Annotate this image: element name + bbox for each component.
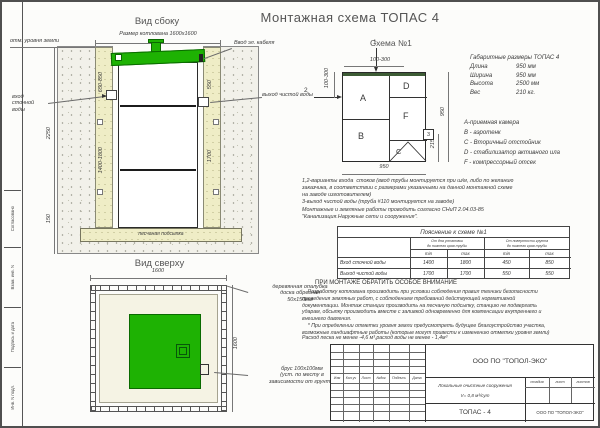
table-sub-min1: min [410, 249, 447, 257]
inlet-label: вход сточной воды [12, 94, 52, 113]
notes-text: 1,2-варианты входа стоков (ввод трубы мо… [302, 178, 600, 221]
scheme-section-a-label: A [360, 93, 366, 103]
formwork-edge-bottom [90, 406, 227, 412]
sand-bedding-label: песчаная подсыпка [138, 232, 183, 238]
dimension-tick [226, 275, 227, 281]
side-view-title: Вид сбоку [102, 16, 212, 27]
scheme-body: A B D F C [342, 72, 426, 162]
attention-footnote: Расход песка не менее -4,6 м³,расход вод… [302, 335, 447, 341]
dimension-line [448, 72, 449, 162]
dimension-line [438, 134, 439, 162]
tank-vent-cap [148, 39, 164, 43]
tank-partition-upper [120, 105, 196, 107]
spec-value: 950 мм [516, 73, 596, 79]
tb-col-list: Лист [359, 373, 373, 383]
scheme-marker2: 2 [304, 87, 308, 94]
scheme-dim-left: 100-300 [324, 68, 330, 88]
stamp-approved-cell: Согласовано [4, 190, 21, 248]
tank-body [118, 62, 198, 228]
cable-entry-label: Ввод эл. кабеля [234, 40, 304, 46]
tb-line [331, 383, 425, 384]
stamp-approved-label: Согласовано [10, 206, 15, 231]
table-colgroup-1: От дна установки до нижнего края трубы [410, 238, 484, 249]
tb-col-ndok: №док [373, 373, 389, 383]
tb-sheets-label: листов [571, 377, 595, 387]
tb-project-line2: V= 0,8 м³/сут [427, 390, 523, 400]
spec-label: Длина [470, 64, 516, 70]
scheme-dim-outlet: 215 [430, 139, 436, 148]
table-cell: 1700 [447, 269, 484, 279]
inlet-arrow [102, 94, 107, 98]
marker2-line [314, 97, 339, 98]
tb-stage-label: стадия [525, 377, 549, 387]
dim-depth: 2250 [46, 127, 52, 139]
spec-label: Ширина [470, 73, 516, 79]
scheme-section-b-label: B [358, 131, 364, 141]
table-sub-min2: min [484, 249, 529, 257]
scheme-section-f-label: F [403, 111, 409, 121]
scheme-section-c-label: C [396, 147, 401, 156]
drawing-sheet: Согласовано Взам. инв. N Подпись и дата … [0, 0, 600, 428]
title-block: Изм Кол.уч Лист №док Подпись Дата ООО ПО… [330, 344, 594, 421]
table-sub-max1: max [447, 249, 484, 257]
tb-line [331, 397, 425, 398]
top-view-dim-width: 1600 [118, 268, 198, 274]
pit-size-label: Размер котлована 1600х1600 [88, 31, 228, 37]
tb-col-podpis: Подпись [389, 373, 409, 383]
formwork-edge-top [90, 285, 227, 291]
stamp-vzam-label: Взам. инв. N [10, 265, 15, 289]
formwork-leader [226, 285, 248, 293]
top-view-dim-height: 1600 [233, 337, 239, 349]
dimension-line [344, 66, 404, 67]
table-sub-max2: max [529, 249, 570, 257]
marker1-arrow [374, 67, 378, 72]
ground-level-line [10, 47, 95, 48]
dim-cable-depth: 550 [207, 80, 213, 89]
tb-col-koluch: Кол.уч [343, 373, 359, 383]
spec-label: Вес [470, 90, 516, 96]
scheme-dim-right: 950 [440, 107, 446, 116]
scheme-dim-top: 100-300 [352, 57, 408, 63]
dim-right-wall: 1700 [207, 150, 213, 162]
spec-value: 210 кг. [516, 90, 596, 96]
tb-line [331, 390, 425, 391]
tb-sheet-label: лист [549, 377, 571, 387]
explanation-table-title: Пояснение к схеме №1 [338, 227, 569, 238]
lid-hatch [115, 54, 122, 61]
tb-col-izm: Изм [331, 373, 343, 383]
formwork-mark [213, 119, 219, 125]
tb-company: ООО ПО "ТОПОЛ-ЭКО" [425, 345, 595, 377]
page-title: Монтажная схема ТОПАС 4 [230, 10, 470, 25]
formwork-mark [97, 119, 103, 125]
legend-item: С - Вторичный отстойник [464, 138, 600, 148]
legend-item: F - компрессорный отсек [464, 158, 600, 168]
tb-line [331, 352, 425, 353]
dimension-line [342, 174, 426, 175]
table-row-label: Выход чистой воды [340, 271, 387, 277]
scheme-divider-df [389, 97, 427, 98]
scheme-divider-ab [343, 119, 390, 120]
scheme-marker3: 3 [427, 132, 430, 138]
table-cell: 450 [484, 258, 529, 268]
table-cell: 1400 [410, 258, 447, 268]
tb-line [525, 387, 595, 388]
stamp-inv-label: Инв. N подл. [10, 385, 15, 410]
scheme-marker1: 1 [373, 39, 377, 46]
dimension-line [90, 278, 227, 279]
sand-bedding: песчаная подсыпка [80, 228, 242, 242]
formwork-edge-right [221, 285, 227, 412]
dim-inlet-depth: 650-850 [98, 72, 104, 92]
table-cell: 850 [529, 258, 570, 268]
ground-level-label: отм. уровня земли [10, 38, 90, 44]
formwork-mark [97, 189, 103, 195]
table-row-label: Вход сточной воды [340, 260, 386, 266]
dim-left-wall: 1400-1800 [98, 147, 104, 173]
table-cell: 550 [484, 269, 529, 279]
attention-body: Разработку котлована производить при усл… [302, 289, 600, 336]
tb-product: ТОПАС - 4 [425, 403, 525, 422]
scheme-section-c-hatch [389, 140, 427, 162]
specs-title: Габаритные размеры ТОПАС 4 [470, 55, 596, 61]
scheme-section-d-label: D [403, 81, 410, 91]
table-cell: 1800 [447, 258, 484, 268]
marker2-arrow [337, 95, 342, 99]
formwork-mark [213, 189, 219, 195]
tb-company2: ООО ПО "ТОПОЛ-ЭКО" [525, 403, 595, 422]
tb-line [331, 359, 425, 360]
scheme-dim-bottom: 950 [362, 164, 406, 170]
stamp-cell-inv: Инв. N подл. [4, 368, 21, 426]
table-cell: 550 [529, 269, 570, 279]
inlet-stub [106, 90, 117, 100]
lid-outlet-notch [200, 364, 209, 375]
spec-value: 2500 мм [516, 81, 596, 87]
table-colgroup-2: От поверхности грунта до нижнего края тр… [484, 238, 570, 249]
tb-line [331, 404, 425, 405]
legend-item: D - стабилизатор активного ила [464, 148, 600, 158]
legend-item: В - аэротенк [464, 128, 600, 138]
scheme-lid-edge [343, 73, 425, 76]
legend-item: А-приемная камера [464, 118, 600, 128]
attention-heading: ПРИ МОНТАЖЕ ОБРАТИТЬ ОСОБОЕ ВНИМАНИЕ [315, 280, 457, 286]
explanation-table: Пояснение к схеме №1 От дна установки до… [337, 226, 570, 279]
tb-line [331, 411, 425, 412]
tank-partition-lower [120, 169, 196, 171]
spec-label: Высота [470, 81, 516, 87]
specs-block: Габаритные размеры ТОПАС 4 Длина950 мм Ш… [470, 55, 596, 96]
dimension-line [54, 48, 55, 254]
lid-hatch-inner [179, 347, 187, 355]
tb-line [331, 366, 425, 367]
stamp-cell-vzam: Взам. инв. N [4, 248, 21, 308]
dimension-line [334, 72, 335, 98]
outlet-stub [198, 97, 209, 107]
sand-wall-right [203, 47, 221, 228]
formwork-edge-left [90, 285, 96, 412]
stamp-column: Согласовано Взам. инв. N Подпись и дата … [4, 2, 23, 426]
tb-col-data: Дата [409, 373, 425, 383]
dimension-tick [90, 275, 91, 281]
stamp-cell-podpis: Подпись и дата [4, 308, 21, 368]
spec-value: 950 мм [516, 64, 596, 70]
dim-sand-thickness: 150 [46, 214, 52, 223]
table-cell: 1700 [410, 269, 447, 279]
legend-block: А-приемная камера В - аэротенк С - Втори… [464, 118, 600, 168]
stamp-podpis-label: Подпись и дата [10, 322, 15, 352]
tank-top-lid [129, 314, 201, 389]
